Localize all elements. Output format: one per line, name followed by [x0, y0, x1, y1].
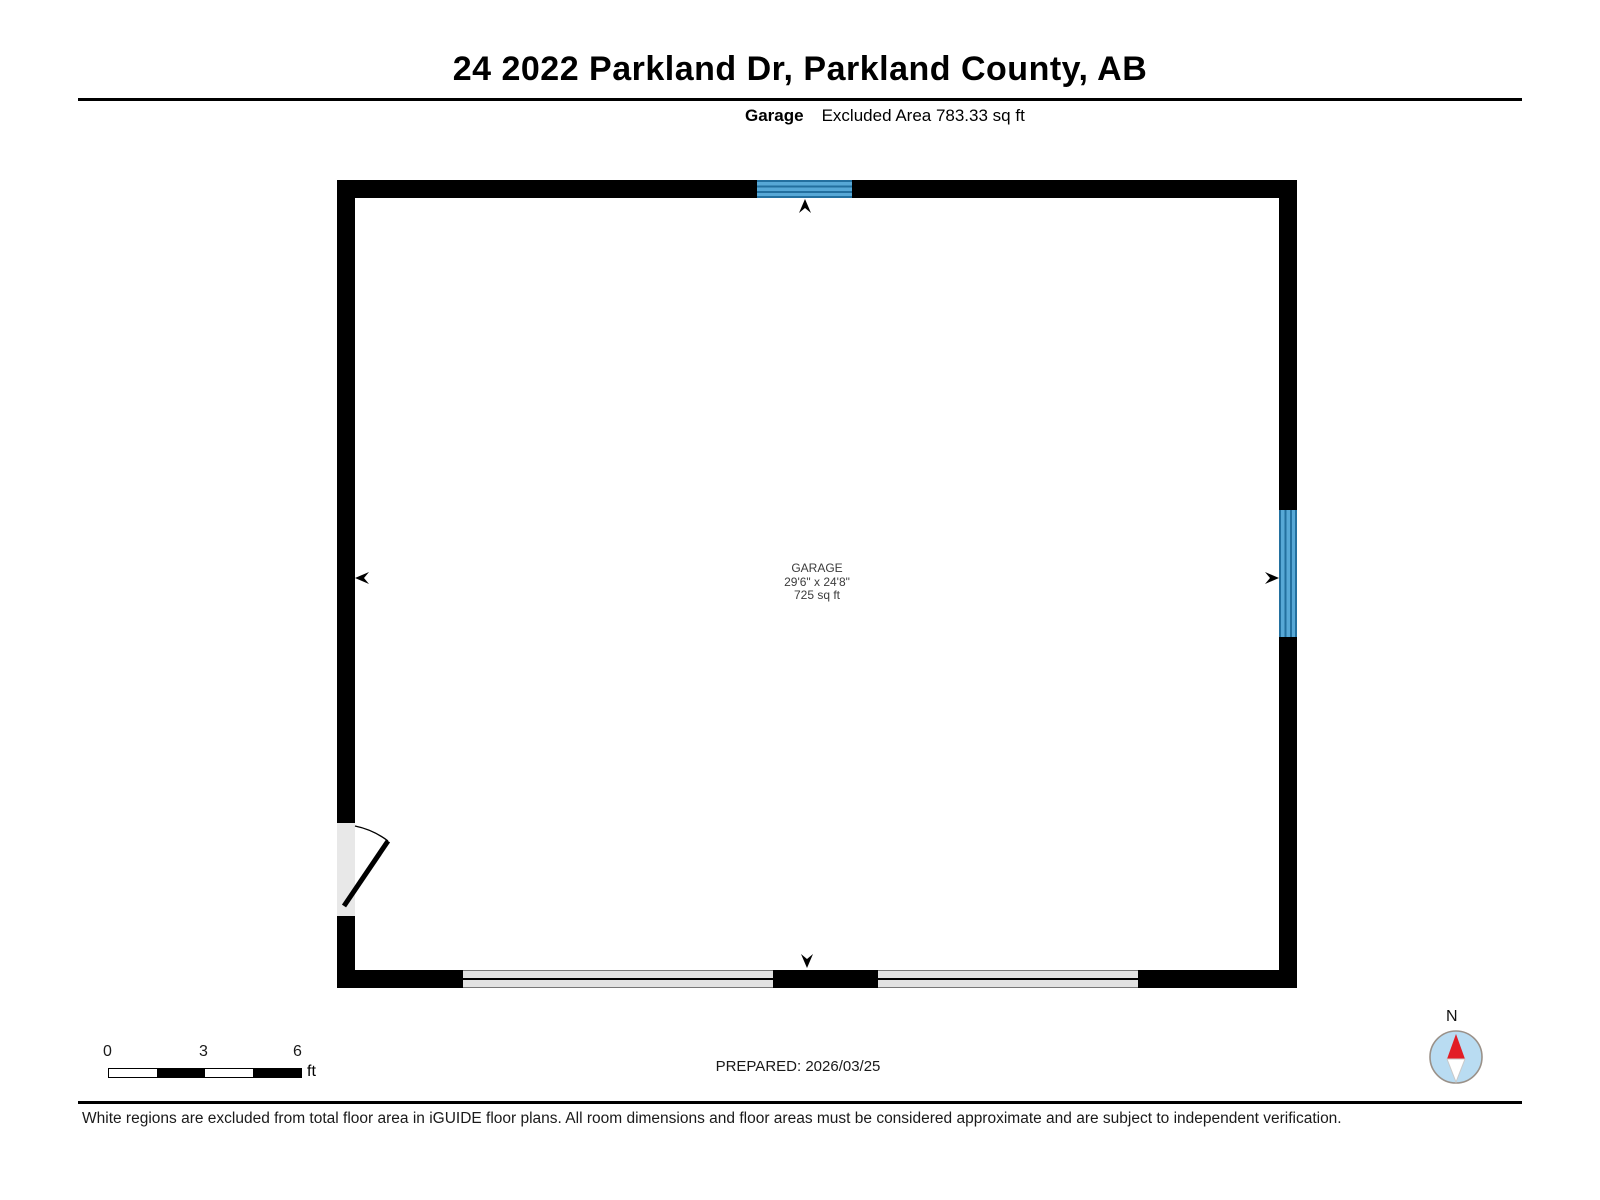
door-arc	[355, 826, 388, 841]
compass-icon	[1424, 1005, 1488, 1089]
room-dimensions: 29'6" x 24'8"	[717, 576, 917, 590]
scale-unit-label: ft	[307, 1063, 316, 1081]
dimension-arrow-left-icon	[355, 572, 369, 584]
scale-tick-6: 6	[293, 1043, 302, 1061]
prepared-date: PREPARED: 2026/03/25	[598, 1058, 998, 1075]
footer-divider	[78, 1101, 1522, 1104]
room-area: 725 sq ft	[717, 589, 917, 603]
excluded-area-label: Excluded Area 783.33 sq ft	[822, 106, 1025, 125]
door-swing	[330, 815, 400, 920]
scale-bar	[108, 1068, 302, 1078]
floor-label: Garage	[745, 106, 804, 125]
scale-tick-0: 0	[103, 1043, 112, 1061]
title-divider	[78, 98, 1522, 101]
garage-door	[878, 970, 1138, 988]
floorplan-subtitle: GarageExcluded Area 783.33 sq ft	[745, 106, 1025, 126]
dimension-arrow-up-icon	[799, 199, 811, 213]
disclaimer-text: White regions are excluded from total fl…	[82, 1110, 1522, 1128]
dimension-arrow-down-icon	[801, 954, 813, 968]
room-name: GARAGE	[717, 562, 917, 576]
page-title: 24 2022 Parkland Dr, Parkland County, AB	[0, 50, 1600, 89]
window-top	[757, 180, 852, 198]
scale-tick-3: 3	[199, 1043, 208, 1061]
garage-door	[463, 970, 773, 988]
room-label: GARAGE 29'6" x 24'8" 725 sq ft	[717, 562, 917, 603]
dimension-arrow-right-icon	[1265, 572, 1279, 584]
window-right	[1279, 510, 1297, 637]
